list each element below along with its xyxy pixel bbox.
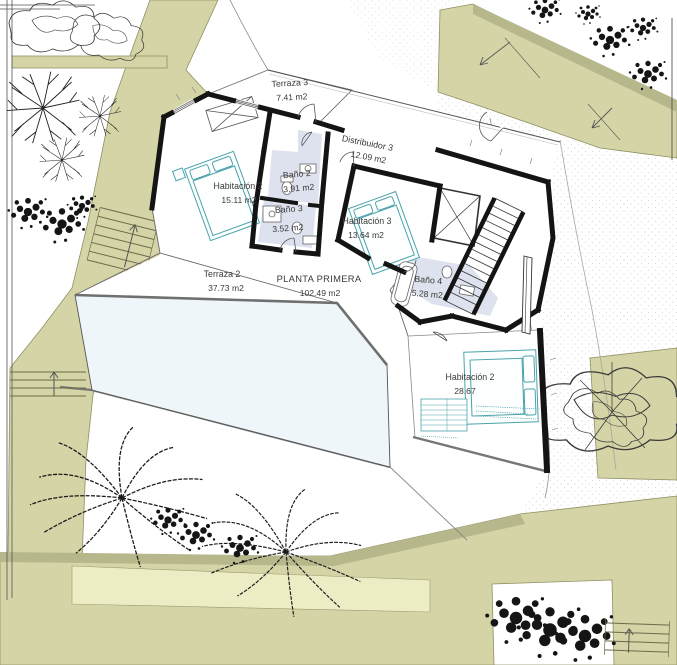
site-plan-page: Terraza 3 7.41 m2 Distribuidor 3 12.09 m…	[0, 0, 677, 665]
plot-boundary-topleft	[0, 5, 95, 9]
room-area-terraza2: 37.73 m2	[208, 283, 244, 293]
toilet-bano4	[442, 266, 452, 278]
room-label-habitacion2: Habitación 2	[214, 181, 263, 191]
terrace-lower-edge-2	[390, 467, 467, 540]
bush-topright-4	[628, 17, 659, 41]
sink-bano4	[459, 285, 474, 296]
floor-title: PLANTA PRIMERA	[277, 273, 362, 284]
bush-topright-1	[528, 0, 561, 24]
terrain-topleft-band	[12, 56, 167, 68]
bush-bottom-2	[177, 522, 215, 551]
room-label-bano3: Baño 3	[275, 203, 304, 215]
bush-topright-3	[590, 26, 631, 57]
room-label-terraza3: Terraza 3	[271, 77, 308, 89]
room-area-habitacion2: 15.11 m2	[221, 195, 256, 205]
room-area-habitacion3: 13.64 m2	[348, 230, 384, 240]
sink-bano3	[303, 236, 317, 244]
room-label-habitacion2-lower: Habitación 2	[446, 372, 495, 382]
bush-left-2	[39, 208, 85, 243]
bed-pillow-1	[523, 356, 535, 382]
floor-area: 102.49 m2	[300, 288, 341, 298]
canopy-tree-1	[9, 1, 100, 52]
terrain-tree-plot	[590, 348, 677, 480]
contour-top-center	[230, 0, 268, 70]
branch-tree-large	[7, 72, 80, 144]
bush-left-1	[8, 198, 49, 229]
bed-pillow-2	[524, 389, 536, 415]
branch-tree-small	[40, 138, 85, 182]
room-area-terraza3: 7.41 m2	[276, 91, 308, 103]
pool	[75, 295, 390, 467]
room-area-habitacion2-lower: 28.67	[454, 386, 476, 396]
room-label-habitacion3: Habitación 3	[343, 216, 392, 226]
floor-plan-drawing: Terraza 3 7.41 m2 Distribuidor 3 12.09 m…	[0, 0, 677, 665]
room-label-terraza2: Terraza 2	[204, 269, 241, 279]
bush-bottom-1	[150, 508, 186, 535]
bush-topright-2	[575, 5, 601, 25]
window-se-tall	[522, 256, 532, 334]
